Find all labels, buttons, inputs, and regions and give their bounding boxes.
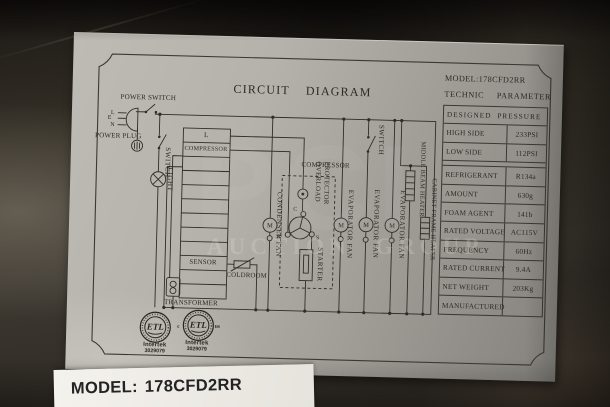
table-cell-label: RATED CURRENT — [440, 259, 504, 278]
table-cell-label: MANUFACTURED — [439, 296, 503, 315]
light-label: LIGHT — [166, 167, 175, 191]
table-cell-label: REFRIGERANT — [442, 166, 506, 185]
terminal-l-label: L — [204, 132, 209, 139]
overload-protector-label: OVERLOAD PROTECTOR — [312, 161, 331, 225]
table-cell-label: HIGH SIDE — [443, 124, 507, 143]
table-cell-value: 60Hz — [504, 242, 543, 261]
model-sticker: MODEL:178CFD2RR — [54, 364, 315, 407]
c-mark: c — [177, 324, 180, 330]
table-cell-label: LOW SIDE — [443, 142, 507, 161]
coldroom-label: COLDROOM — [226, 273, 267, 281]
table-row: MANUFACTURED — [439, 296, 542, 316]
table-cell-label: FREQUENCY — [440, 240, 504, 259]
fan-switch-label: SWITCH — [377, 125, 386, 156]
table-cell-value: R134a — [506, 168, 545, 187]
sticker-model-label: MODEL: — [71, 378, 138, 398]
etl-mark-right: ETL — [181, 308, 216, 343]
table-cell-value: 233PSI — [507, 125, 546, 144]
us-mark: us — [215, 324, 220, 330]
terminal-s-label: S — [316, 235, 320, 241]
starter-symbol — [299, 249, 313, 280]
table-cell-value: 203Kg — [503, 279, 542, 298]
table-cell-value — [503, 298, 542, 317]
table-cell-value: 9.4A — [504, 260, 543, 279]
terminal-c-label: C — [293, 207, 297, 213]
table-cell-label: RATED VOLTAGE — [441, 222, 505, 241]
etl-letters: ETL — [189, 320, 208, 330]
motor-letter: M — [267, 222, 273, 229]
table-cell-value: 630g — [506, 186, 545, 205]
sensor-label: SENSOR — [189, 259, 216, 267]
tech-table: DESIGNED PRESSURE HIGH SIDE233PSILOW SID… — [438, 105, 548, 318]
table-cell-label: FOAM AGENT — [441, 203, 505, 222]
etl-letters: ETL — [146, 321, 165, 331]
tech-table-rows: HIGH SIDE233PSILOW SIDE112PSIREFRIGERANT… — [439, 124, 547, 317]
transformer-label: TRANSFORMER — [164, 299, 218, 307]
starter-label: STARTER — [316, 247, 325, 282]
pin-n-label: N — [110, 121, 115, 127]
etl-mark-left: ETL — [138, 310, 173, 345]
circuit-diagram-plate: M M M M CIRCUIT DIAGRAM POWER SWITCH POW… — [65, 32, 564, 382]
sticker-model-value: 178CFD2RR — [145, 376, 243, 396]
pin-e-label: E — [108, 115, 112, 121]
terminal-r-label: R — [277, 234, 281, 240]
power-plug-label: POWER PLUG — [95, 132, 142, 140]
intertek-number-right: 3029079 — [187, 346, 207, 353]
motor-letter: M — [363, 222, 369, 229]
terminal-compressor-label: COMPRESSOR — [184, 146, 227, 153]
intertek-number-left: 3029079 — [145, 347, 165, 354]
photo-of-circuit-diagram-plate: M M M M CIRCUIT DIAGRAM POWER SWITCH POW… — [0, 0, 610, 407]
table-cell-value: 112PSI — [507, 144, 546, 163]
motor-letter: M — [389, 223, 395, 230]
table-cell-label: AMOUNT — [442, 184, 506, 203]
motor-letter: M — [338, 222, 344, 229]
power-switch-label: POWER SWITCH — [120, 94, 176, 102]
table-cell-value: AC115V — [505, 223, 544, 242]
table-cell-label: NET WEIGHT — [439, 277, 503, 296]
table-cell-value: 141b — [505, 205, 544, 224]
condenser-fan-label: CONDENSER FAN — [274, 192, 284, 257]
